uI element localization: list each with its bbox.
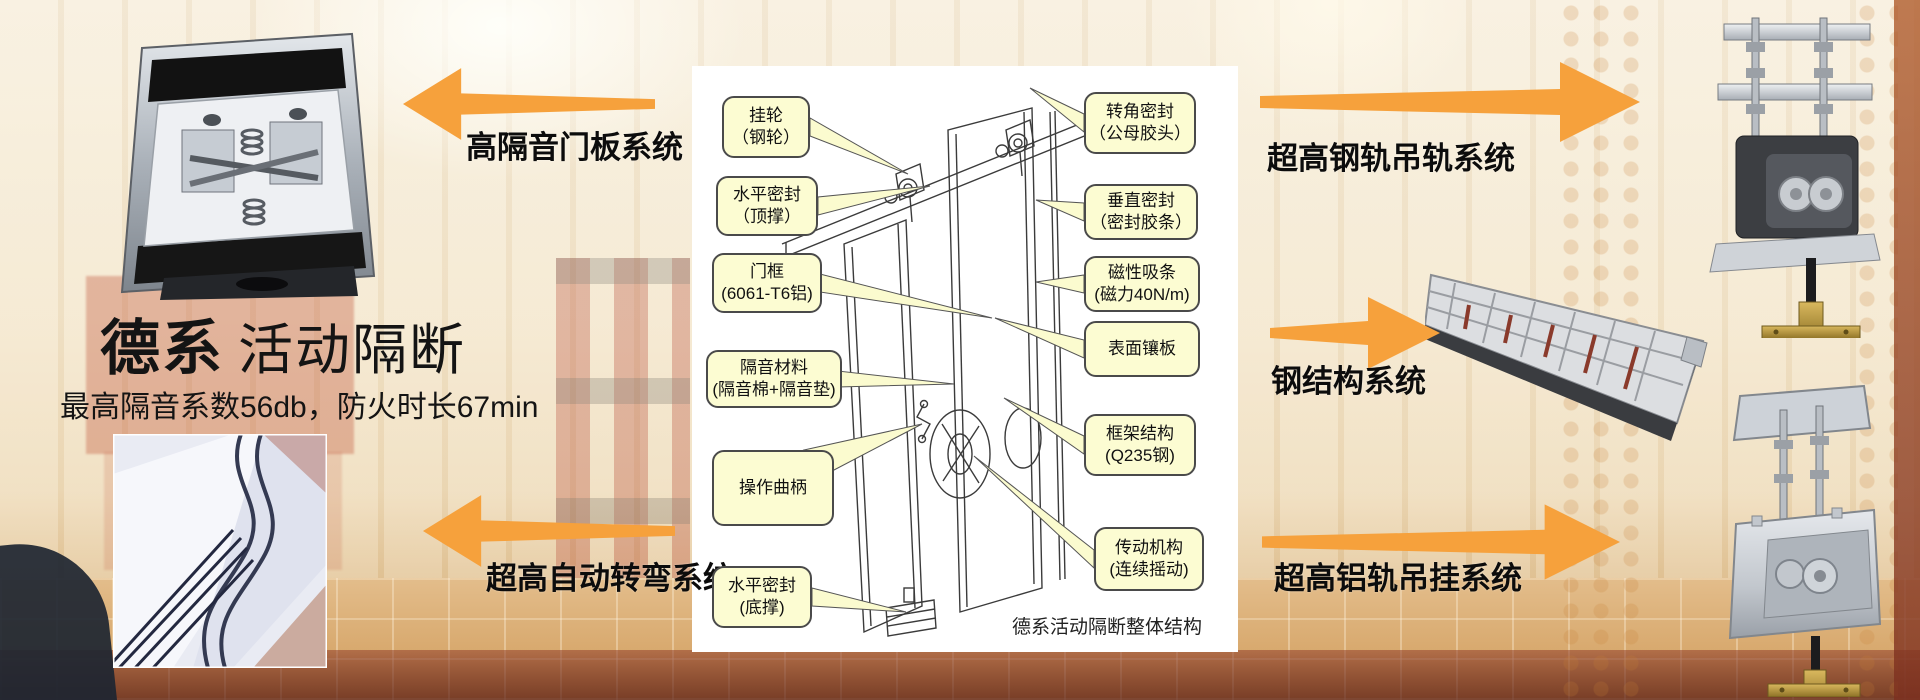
callout-text: 框架结构 xyxy=(1106,423,1174,445)
callout-text: (连续摇动) xyxy=(1109,559,1188,581)
callout-text: 传动机构 xyxy=(1115,537,1183,559)
product-title: 德系活动隔断 xyxy=(100,300,466,387)
callout-corner-seal: 转角密封 （公母胶头） xyxy=(1084,92,1196,154)
callout-text: (磁力40N/m) xyxy=(1094,284,1189,306)
callout-text: （公母胶头） xyxy=(1089,123,1191,145)
system-label-door-panel: 高隔音门板系统 xyxy=(466,122,683,167)
callout-text: 垂直密封 xyxy=(1107,190,1175,212)
callout-text: （顶撑） xyxy=(733,206,801,228)
callout-text: 挂轮 xyxy=(749,105,783,127)
callout-bottom-seal: 水平密封 (底撑) xyxy=(712,566,812,628)
callout-text: 门框 xyxy=(750,261,784,283)
callout-text: 转角密封 xyxy=(1106,101,1174,123)
steel-structure-photo xyxy=(1425,233,1715,458)
callout-top-seal: 水平密封 （顶撑） xyxy=(716,176,818,236)
callout-text: （密封胶条） xyxy=(1090,212,1192,234)
callout-operating-crank: 操作曲柄 xyxy=(712,450,834,526)
callout-text: (6061-T6铝) xyxy=(721,283,813,305)
aluminum-rail-hanger-photo xyxy=(1712,382,1892,697)
callout-text: (底撑) xyxy=(739,597,784,619)
callout-text: (隔音棉+隔音垫) xyxy=(712,379,835,401)
callout-transmission: 传动机构 (连续摇动) xyxy=(1094,527,1204,591)
callout-soundproof-material: 隔音材料 (隔音棉+隔音垫) xyxy=(706,350,842,408)
steel-rail-hanger-photo xyxy=(1708,8,1886,338)
product-subtitle: 最高隔音系数56db，防火时长67min xyxy=(60,382,538,426)
brand-name: 德系 xyxy=(100,315,224,382)
curved-track-photo xyxy=(113,434,327,668)
callout-vertical-seal: 垂直密封 （密封胶条） xyxy=(1084,184,1198,240)
callout-magnetic-strip: 磁性吸条 (磁力40N/m) xyxy=(1084,256,1200,312)
callout-text: 操作曲柄 xyxy=(739,477,807,499)
callout-surface-panel: 表面镶板 xyxy=(1084,321,1200,377)
brand-suffix: 活动隔断 xyxy=(238,319,466,381)
callout-text: 隔音材料 xyxy=(740,357,808,379)
callout-text: 水平密封 xyxy=(728,575,796,597)
slide-root: 德系活动隔断 最高隔音系数56db，防火时长67min xyxy=(0,0,1920,700)
system-label-aluminum-rail: 超高铝轨吊挂系统 xyxy=(1274,553,1522,598)
callout-text: （钢轮） xyxy=(732,127,800,149)
arrow-right-top xyxy=(1260,62,1640,142)
callout-text: 水平密封 xyxy=(733,184,801,206)
callout-door-frame: 门框 (6061-T6铝) xyxy=(712,253,822,313)
door-panel-mechanism-photo xyxy=(112,8,382,300)
diagram-caption: 德系活动隔断整体结构 xyxy=(1012,612,1202,639)
system-label-steel-rail: 超高钢轨吊轨系统 xyxy=(1267,133,1515,178)
system-label-auto-turn: 超高自动转弯系统 xyxy=(486,553,734,598)
background-right-edge xyxy=(1894,0,1920,700)
callout-hanging-wheel: 挂轮 （钢轮） xyxy=(722,96,810,158)
callout-frame-structure: 框架结构 (Q235钢) xyxy=(1084,414,1196,476)
system-label-steel-structure: 钢结构系统 xyxy=(1271,356,1426,401)
callout-text: 表面镶板 xyxy=(1108,338,1176,360)
callout-text: (Q235钢) xyxy=(1105,445,1175,467)
callout-text: 磁性吸条 xyxy=(1108,262,1176,284)
